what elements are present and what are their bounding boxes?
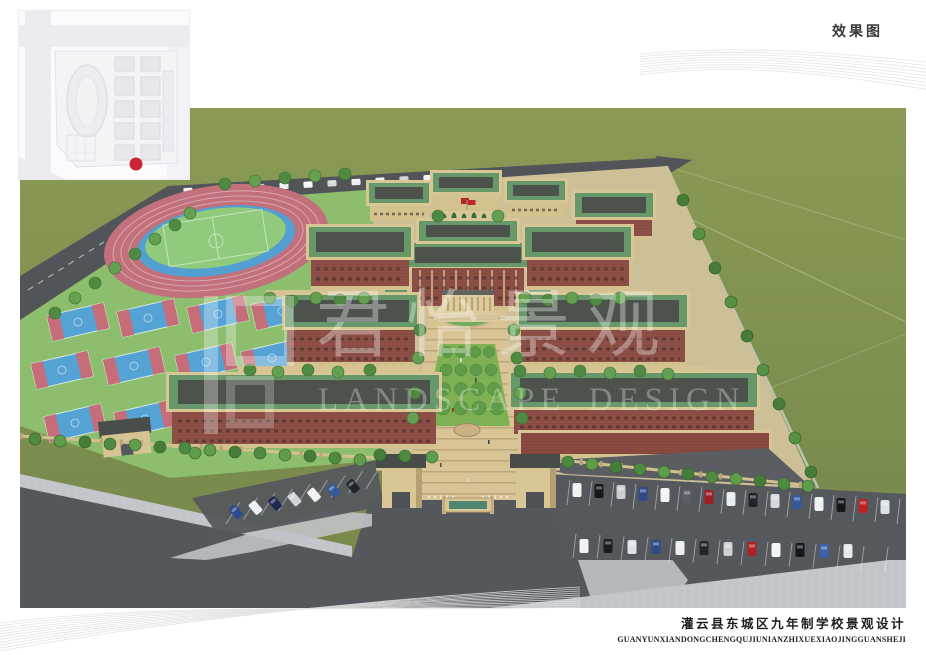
page-title: 效果图 [832,21,883,41]
entry-emblem-stone [454,424,480,437]
site-plan-inset [18,10,190,180]
project-title-cn: 灌云县东城区九年制学校景观设计 [617,613,906,632]
rendering-canvas [20,108,906,608]
aerial-rendering: 君怡景观 LANDSCAPE DESIGN [20,108,906,608]
map-road-vertical [25,11,51,179]
project-title-pinyin: GUANYUNXIANDONGCHENGQUJIUNIANZHIXUEXIAOJ… [617,635,906,644]
site-plan-map [19,11,189,179]
utility-building [98,417,153,458]
project-title-block: 灌云县东城区九年制学校景观设计 GUANYUNXIANDONGCHENGQUJI… [617,613,906,644]
entrance-portico [442,295,494,313]
decorative-swoosh-top [640,36,926,106]
map-location-marker [130,158,143,171]
red-flag [468,200,476,205]
presentation-sheet: 效果图 [0,0,926,655]
decorative-swoosh-bottom [0,573,580,655]
